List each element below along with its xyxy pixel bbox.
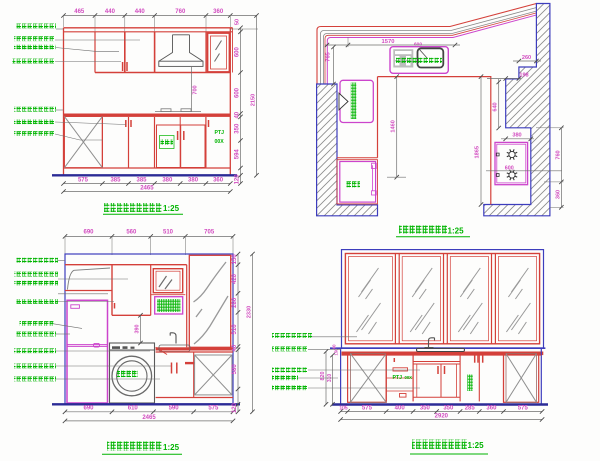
- svg-text:760: 760: [556, 150, 562, 159]
- svg-text:2465: 2465: [140, 186, 154, 192]
- svg-text:1:25: 1:25: [468, 441, 485, 450]
- svg-text:575: 575: [362, 405, 373, 411]
- svg-text:465: 465: [74, 9, 85, 15]
- svg-text:150: 150: [334, 348, 339, 356]
- svg-text:PTJ: PTJ: [393, 375, 403, 381]
- svg-text:580: 580: [232, 364, 238, 375]
- svg-text:PTJ: PTJ: [215, 130, 225, 136]
- svg-text:594: 594: [235, 149, 241, 160]
- svg-text:560: 560: [126, 230, 137, 236]
- svg-text:360: 360: [556, 190, 562, 199]
- svg-text:1:25: 1:25: [448, 226, 465, 235]
- svg-text:198: 198: [519, 73, 528, 79]
- svg-text:00X: 00X: [405, 375, 413, 380]
- svg-text:360: 360: [213, 177, 224, 183]
- svg-text:600: 600: [414, 42, 422, 48]
- svg-text:590: 590: [169, 406, 180, 412]
- svg-text:600: 600: [235, 87, 241, 98]
- svg-text:440: 440: [105, 9, 116, 15]
- svg-text:350: 350: [443, 405, 454, 411]
- svg-text:440: 440: [135, 9, 146, 15]
- svg-text:350: 350: [235, 123, 241, 134]
- svg-text:420: 420: [232, 273, 238, 284]
- svg-text:400: 400: [395, 405, 406, 411]
- svg-text:380: 380: [512, 133, 521, 139]
- svg-text:575: 575: [518, 405, 529, 411]
- svg-text:765: 765: [326, 52, 332, 61]
- svg-text:690: 690: [83, 230, 94, 236]
- svg-text:260: 260: [522, 55, 531, 61]
- svg-text:280: 280: [232, 297, 238, 308]
- svg-text:1460: 1460: [391, 120, 397, 132]
- svg-text:575: 575: [78, 177, 89, 183]
- svg-text:1:25: 1:25: [163, 204, 180, 213]
- svg-text:760: 760: [175, 9, 186, 15]
- svg-text:40: 40: [232, 344, 238, 351]
- svg-text:705: 705: [204, 230, 215, 236]
- svg-text:385: 385: [136, 177, 147, 183]
- svg-text:700: 700: [193, 85, 199, 94]
- svg-text:380: 380: [188, 177, 199, 183]
- svg-text:1570: 1570: [382, 39, 395, 45]
- svg-text:2150: 2150: [251, 94, 257, 106]
- svg-text:50: 50: [235, 19, 241, 25]
- svg-text:2465: 2465: [142, 415, 156, 421]
- svg-text:360: 360: [486, 405, 497, 411]
- svg-text:600: 600: [235, 46, 241, 57]
- svg-text:575: 575: [208, 406, 219, 412]
- svg-text:820: 820: [320, 372, 326, 381]
- svg-text:510: 510: [232, 324, 238, 335]
- svg-text:640: 640: [493, 102, 499, 111]
- svg-text:120: 120: [232, 402, 238, 413]
- svg-text:610: 610: [128, 406, 139, 412]
- svg-text:690: 690: [83, 406, 94, 412]
- svg-text:1865: 1865: [475, 146, 481, 158]
- svg-text:390: 390: [135, 325, 141, 334]
- svg-text:40: 40: [235, 111, 241, 118]
- svg-text:285: 285: [465, 405, 476, 411]
- svg-text:360: 360: [213, 9, 224, 15]
- svg-text:380: 380: [162, 177, 173, 183]
- svg-text:150: 150: [232, 254, 238, 265]
- svg-text:120: 120: [235, 174, 241, 185]
- svg-text:00X: 00X: [215, 139, 225, 145]
- svg-text:105: 105: [339, 405, 348, 411]
- svg-text:385: 385: [110, 177, 121, 183]
- svg-text:510: 510: [163, 230, 174, 236]
- svg-text:2920: 2920: [435, 414, 449, 420]
- svg-text:2330: 2330: [247, 306, 253, 318]
- svg-text:350: 350: [420, 405, 431, 411]
- svg-text:1:25: 1:25: [163, 443, 180, 452]
